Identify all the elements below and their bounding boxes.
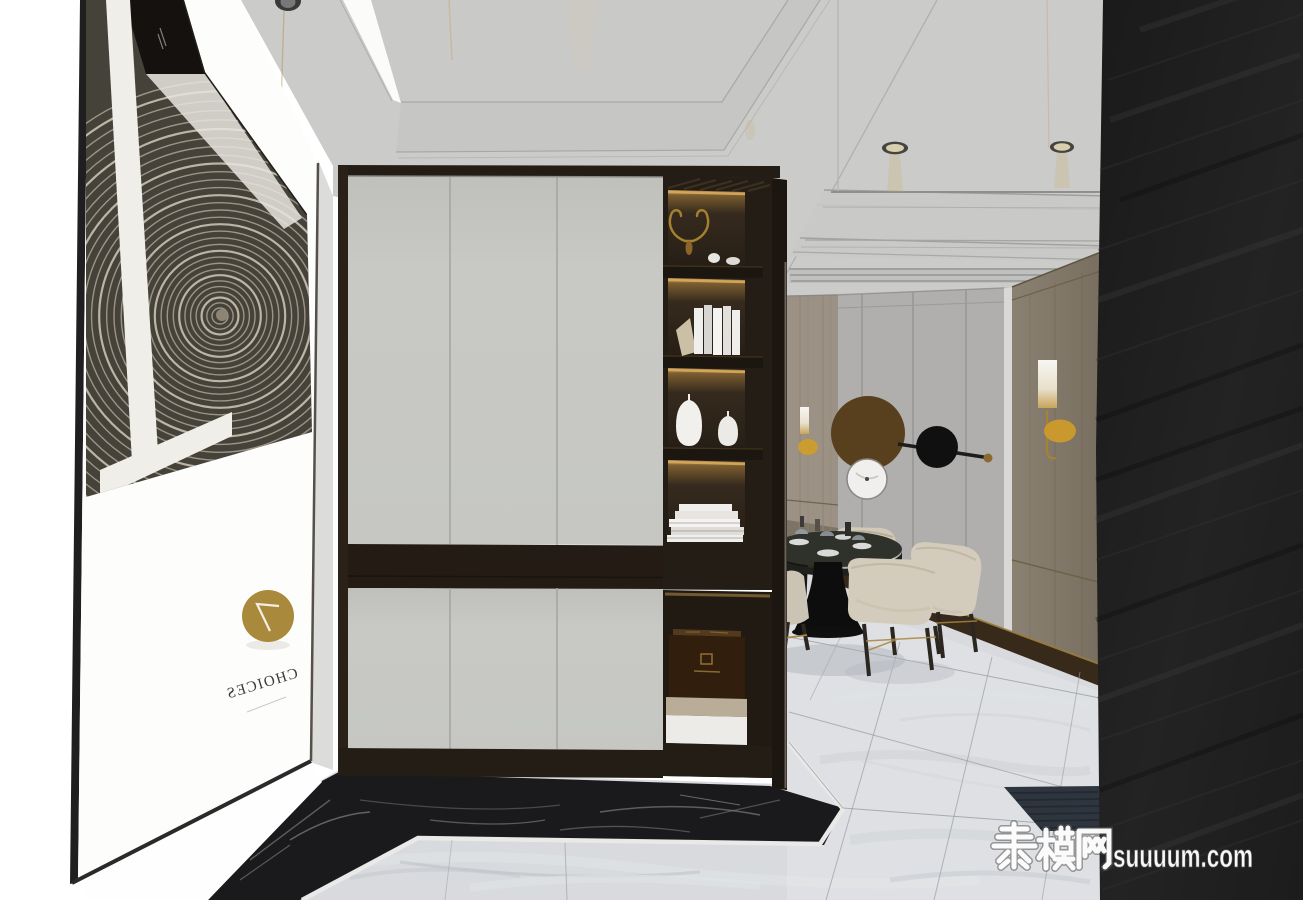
svg-text:suuuum.com: suuuum.com (1113, 838, 1253, 874)
